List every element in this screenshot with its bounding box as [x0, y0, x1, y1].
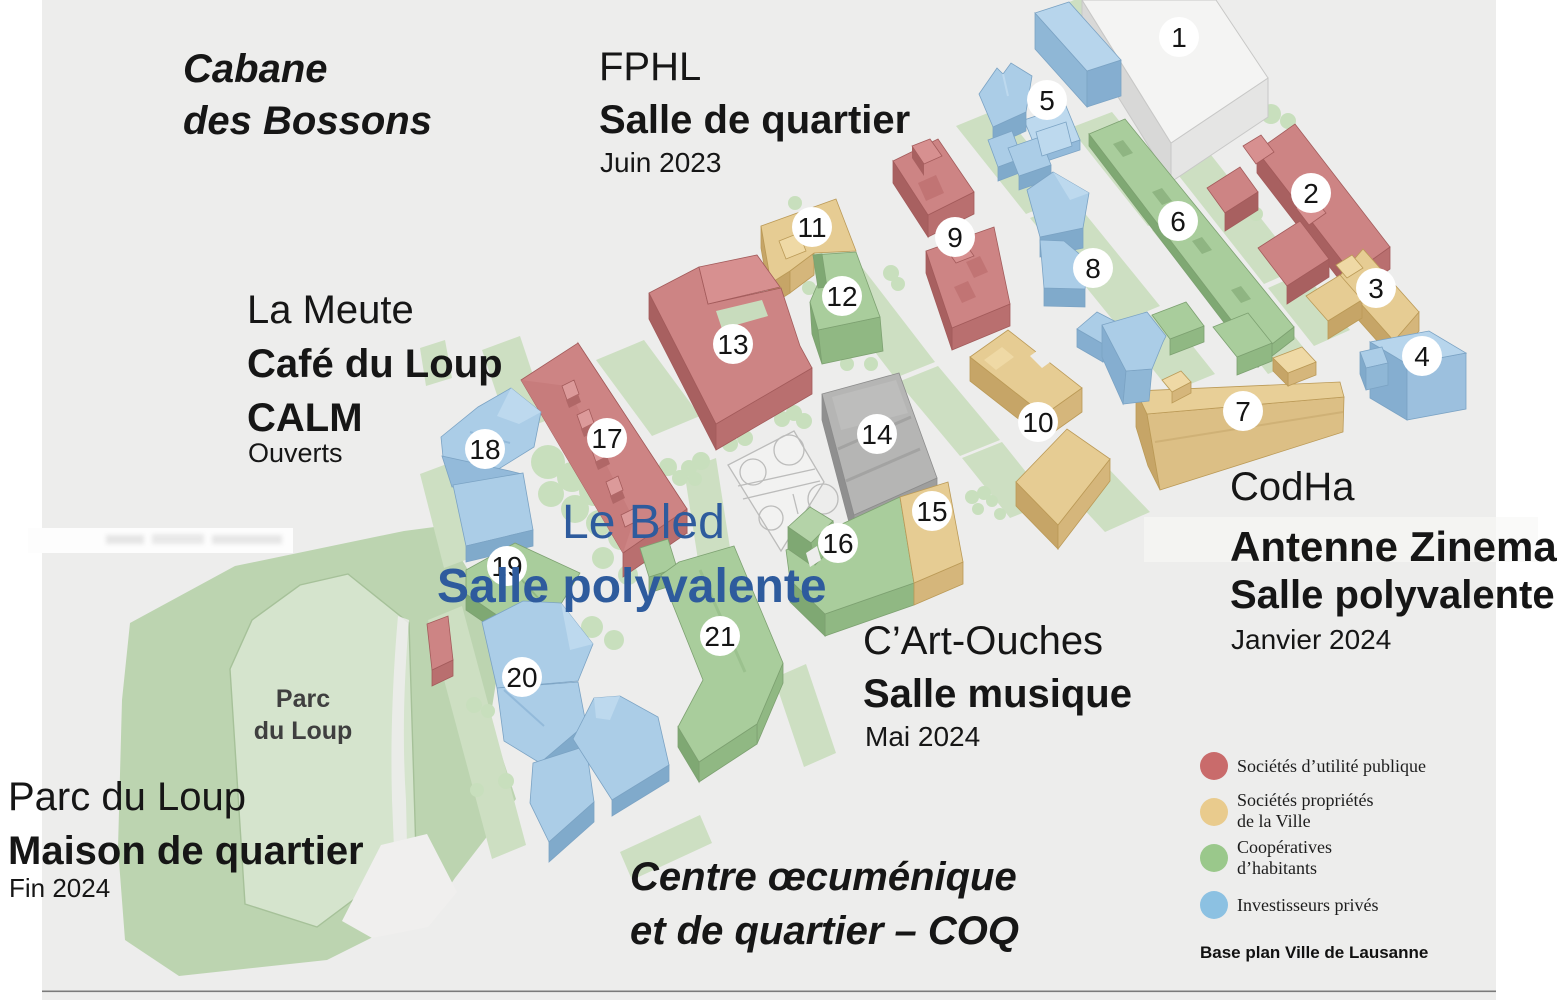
svg-text:4: 4 [1414, 341, 1430, 372]
svg-text:5: 5 [1039, 85, 1055, 116]
svg-text:Centre œcuménique: Centre œcuménique [630, 855, 1017, 899]
svg-text:Salle de quartier: Salle de quartier [599, 98, 910, 142]
svg-text:Sociétés propriétés: Sociétés propriétés [1237, 790, 1373, 810]
svg-text:11: 11 [797, 212, 826, 243]
svg-text:12: 12 [826, 281, 857, 312]
svg-text:Le Bled: Le Bled [562, 496, 725, 549]
svg-text:16: 16 [822, 528, 853, 559]
svg-text:20: 20 [506, 662, 537, 693]
svg-text:La Meute: La Meute [247, 288, 414, 332]
svg-text:14: 14 [861, 419, 892, 450]
svg-text:15: 15 [916, 496, 947, 527]
svg-text:CALM: CALM [247, 396, 363, 440]
svg-text:Investisseurs privés: Investisseurs privés [1237, 895, 1378, 915]
svg-text:17: 17 [591, 423, 622, 454]
svg-text:18: 18 [469, 434, 500, 465]
svg-text:Base plan Ville de Lausanne: Base plan Ville de Lausanne [1200, 943, 1428, 962]
svg-text:FPHL: FPHL [599, 45, 701, 89]
svg-text:9: 9 [947, 222, 963, 253]
svg-text:des Bossons: des Bossons [183, 99, 432, 143]
svg-text:Cabane: Cabane [183, 47, 328, 91]
svg-text:CodHa: CodHa [1230, 465, 1355, 509]
svg-text:6: 6 [1170, 206, 1186, 237]
svg-text:Mai 2024: Mai 2024 [865, 721, 980, 752]
svg-text:Salle musique: Salle musique [863, 672, 1132, 716]
svg-text:de la Ville: de la Ville [1237, 811, 1311, 831]
svg-text:Salle polyvalente: Salle polyvalente [437, 560, 827, 613]
svg-text:C’Art-Ouches: C’Art-Ouches [863, 619, 1103, 663]
svg-text:du Loup: du Loup [254, 717, 353, 745]
svg-text:d’habitants: d’habitants [1237, 858, 1317, 878]
svg-text:10: 10 [1022, 407, 1053, 438]
svg-text:Janvier 2024: Janvier 2024 [1231, 624, 1391, 655]
svg-text:Fin 2024: Fin 2024 [9, 873, 110, 903]
svg-text:Parc du Loup: Parc du Loup [8, 775, 246, 819]
svg-text:Sociétés d’utilité publique: Sociétés d’utilité publique [1237, 756, 1426, 776]
svg-text:Maison de quartier: Maison de quartier [8, 829, 364, 873]
svg-text:2: 2 [1303, 178, 1319, 209]
svg-text:1: 1 [1171, 22, 1187, 53]
svg-text:7: 7 [1235, 396, 1251, 427]
svg-text:21: 21 [704, 621, 735, 652]
svg-text:8: 8 [1085, 253, 1101, 284]
svg-text:Salle polyvalente: Salle polyvalente [1230, 573, 1555, 617]
svg-text:et de quartier – COQ: et de quartier – COQ [630, 909, 1019, 953]
svg-text:Ouverts: Ouverts [248, 438, 343, 468]
svg-text:Juin 2023: Juin 2023 [600, 147, 721, 178]
svg-text:Coopératives: Coopératives [1237, 837, 1332, 857]
svg-text:Antenne Zinema: Antenne Zinema [1230, 523, 1557, 570]
svg-text:13: 13 [717, 329, 748, 360]
svg-text:Café du Loup: Café du Loup [247, 342, 503, 386]
svg-text:Parc: Parc [276, 685, 330, 713]
svg-text:3: 3 [1368, 273, 1384, 304]
